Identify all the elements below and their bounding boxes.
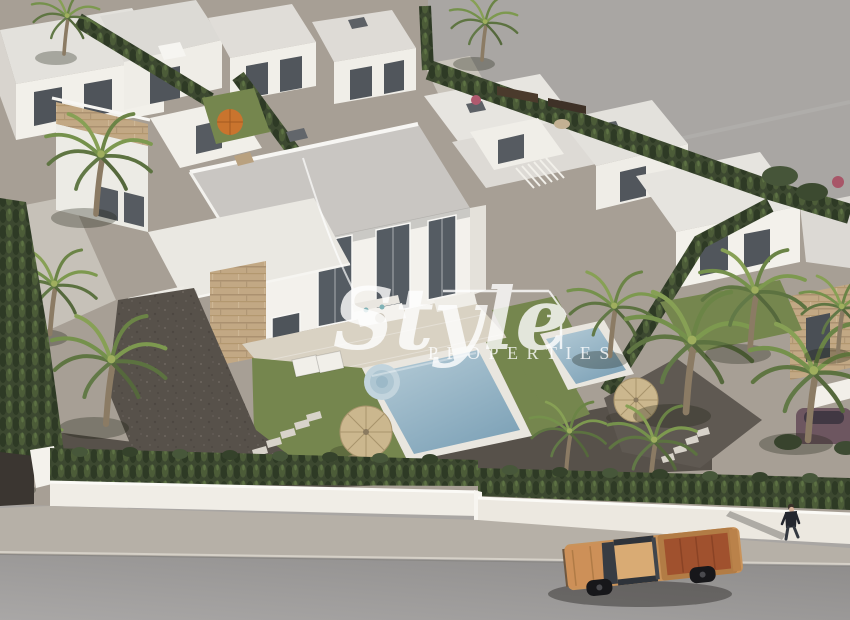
decorative-stone (554, 119, 570, 129)
driveway-gap (0, 452, 34, 506)
pedestrian-leg (786, 527, 788, 539)
villa-window (384, 60, 404, 94)
roman-steps (376, 376, 388, 388)
flower-bush (832, 176, 844, 188)
hedgerow (425, 6, 428, 70)
parasol-cap (634, 398, 639, 403)
villa-window (350, 66, 372, 100)
watermark-caps: PROPERTIES (428, 343, 618, 363)
villa-window (124, 192, 144, 227)
garden-bush (796, 183, 828, 201)
garden-bush (762, 166, 798, 186)
villa-window (280, 56, 302, 92)
aerial-render: Style PROPERTIES (0, 0, 850, 620)
parasol-cap (363, 429, 369, 435)
flower-bush (471, 95, 481, 105)
